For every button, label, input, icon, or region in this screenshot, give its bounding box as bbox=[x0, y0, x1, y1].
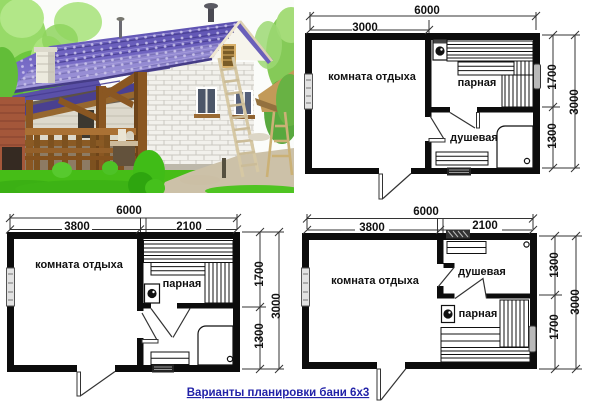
svg-text:1300: 1300 bbox=[549, 252, 561, 278]
svg-text:6000: 6000 bbox=[413, 206, 439, 218]
svg-text:1700: 1700 bbox=[547, 64, 559, 90]
svg-text:1300: 1300 bbox=[547, 123, 559, 149]
svg-text:2100: 2100 bbox=[176, 221, 202, 233]
svg-text:3800: 3800 bbox=[359, 222, 385, 234]
svg-text:2100: 2100 bbox=[472, 220, 498, 232]
svg-text:парная: парная bbox=[163, 278, 202, 290]
svg-text:душевая: душевая bbox=[458, 266, 506, 278]
svg-text:3000: 3000 bbox=[570, 289, 582, 315]
svg-text:3000: 3000 bbox=[271, 293, 283, 319]
svg-text:1700: 1700 bbox=[549, 314, 561, 340]
svg-text:парная: парная bbox=[458, 77, 497, 89]
svg-text:1700: 1700 bbox=[254, 261, 266, 287]
svg-text:парная: парная bbox=[459, 308, 498, 320]
svg-text:3000: 3000 bbox=[352, 22, 378, 34]
svg-text:Варианты планировки бани 6х3: Варианты планировки бани 6х3 bbox=[187, 387, 369, 399]
svg-text:1300: 1300 bbox=[254, 323, 266, 349]
svg-text:6000: 6000 bbox=[116, 205, 142, 217]
svg-text:комната отдыха: комната отдыха bbox=[328, 71, 417, 83]
svg-text:душевая: душевая bbox=[450, 132, 498, 144]
svg-text:6000: 6000 bbox=[414, 5, 440, 17]
svg-text:3800: 3800 bbox=[64, 221, 90, 233]
svg-text:3000: 3000 bbox=[569, 89, 581, 115]
svg-text:комната отдыха: комната отдыха bbox=[331, 275, 420, 287]
svg-text:комната отдыха: комната отдыха bbox=[35, 259, 124, 271]
